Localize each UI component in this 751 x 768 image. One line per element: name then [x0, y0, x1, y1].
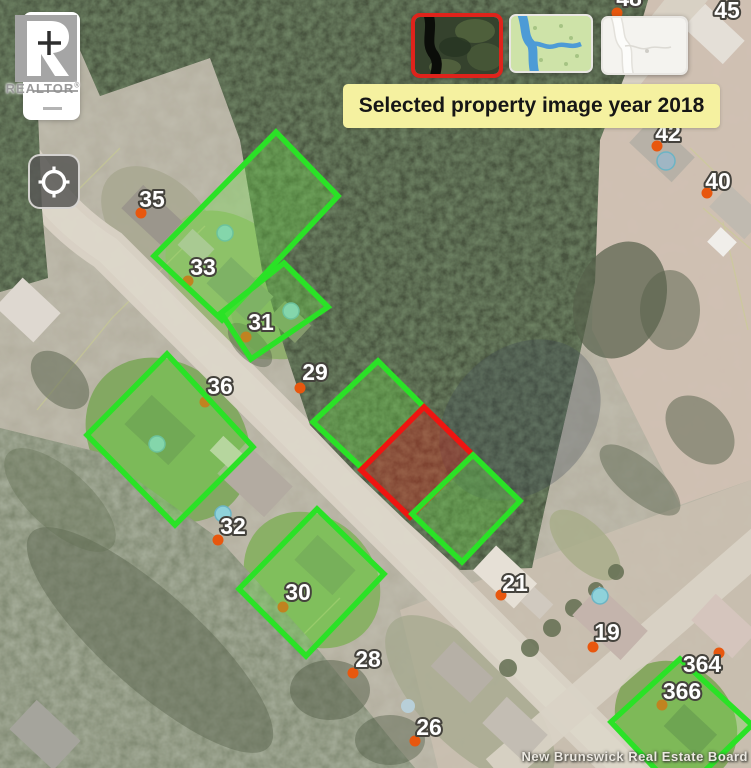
plan-thumbnail-icon — [603, 18, 686, 73]
map-thumbnail-icon — [511, 16, 591, 71]
layer-button-street-map[interactable] — [509, 14, 593, 73]
target-crosshair-icon — [37, 165, 71, 199]
board-watermark: New Brunswick Real Estate Board — [522, 749, 748, 764]
realtor-brand-text: REALTOR — [6, 81, 75, 96]
civic-number-36: 36 — [207, 373, 233, 399]
logo-underline-dash — [43, 107, 62, 110]
aerial-thumbnail-icon — [415, 17, 499, 74]
civic-number-35: 35 — [139, 186, 165, 212]
civic-number-45: 45 — [714, 0, 740, 23]
civic-number-29: 29 — [302, 359, 328, 385]
layer-button-parcel-plan[interactable] — [601, 16, 688, 75]
civic-number-364: 364 — [683, 651, 722, 677]
registered-symbol: ® — [74, 83, 80, 90]
logo-strike-line — [33, 90, 78, 92]
civic-number-28: 28 — [355, 646, 381, 672]
civic-number-48: 48 — [616, 0, 642, 11]
civic-number-366: 366 — [663, 678, 701, 704]
civic-number-33: 33 — [190, 254, 216, 280]
civic-number-40: 40 — [705, 168, 731, 194]
realtor-r-icon — [15, 15, 77, 82]
layer-button-aerial-imagery[interactable] — [411, 13, 503, 78]
civic-number-31: 31 — [248, 309, 274, 335]
map-viewport[interactable]: 484542403533312936323028262119364366 REA… — [0, 0, 751, 768]
civic-number-26: 26 — [416, 714, 442, 740]
civic-number-19: 19 — [594, 619, 620, 645]
civic-number-21: 21 — [502, 570, 528, 596]
image-year-banner: Selected property image year 2018 — [343, 84, 720, 128]
locate-button[interactable] — [28, 154, 80, 209]
realtor-wordmark: REALTOR® — [1, 81, 85, 96]
civic-number-30: 30 — [285, 579, 311, 605]
civic-number-32: 32 — [220, 513, 246, 539]
